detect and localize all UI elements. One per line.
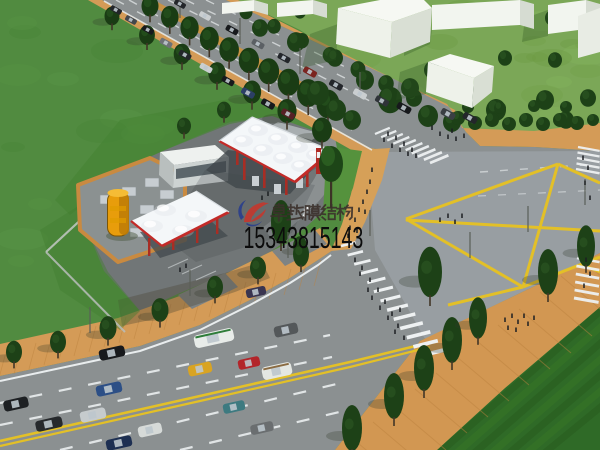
svg-text:15343815143: 15343815143 <box>244 222 364 255</box>
